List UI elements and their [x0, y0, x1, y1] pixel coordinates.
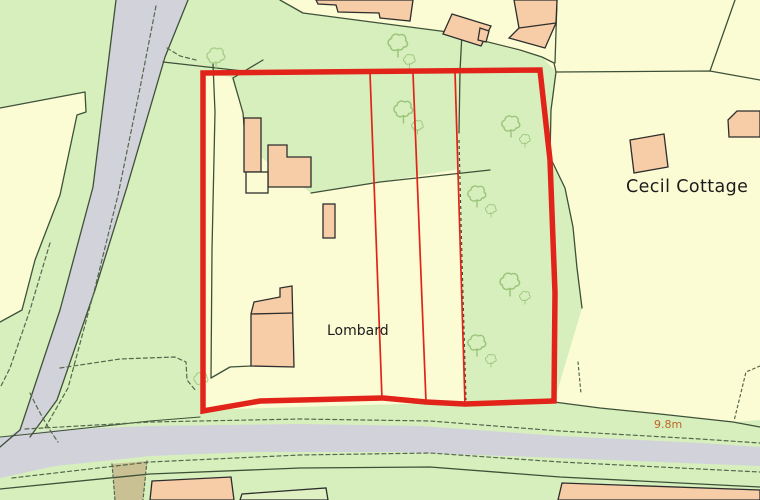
driveway-track: [112, 461, 147, 500]
site-plan-map: [0, 0, 760, 500]
building-site-small: [323, 204, 335, 238]
building-site-shed-tall: [244, 118, 261, 172]
label-property-name: Lombard: [327, 323, 389, 339]
building-cecil-outbuilding: [630, 134, 668, 173]
building-bottom-left: [150, 477, 234, 500]
label-neighbor-property: Cecil Cottage: [626, 177, 748, 197]
building-right-edge: [728, 111, 760, 137]
label-road-width: 9.8m: [654, 418, 682, 431]
outbuilding-open: [246, 172, 268, 193]
map-canvas: Lombard Cecil Cottage 9.8m: [0, 0, 760, 500]
